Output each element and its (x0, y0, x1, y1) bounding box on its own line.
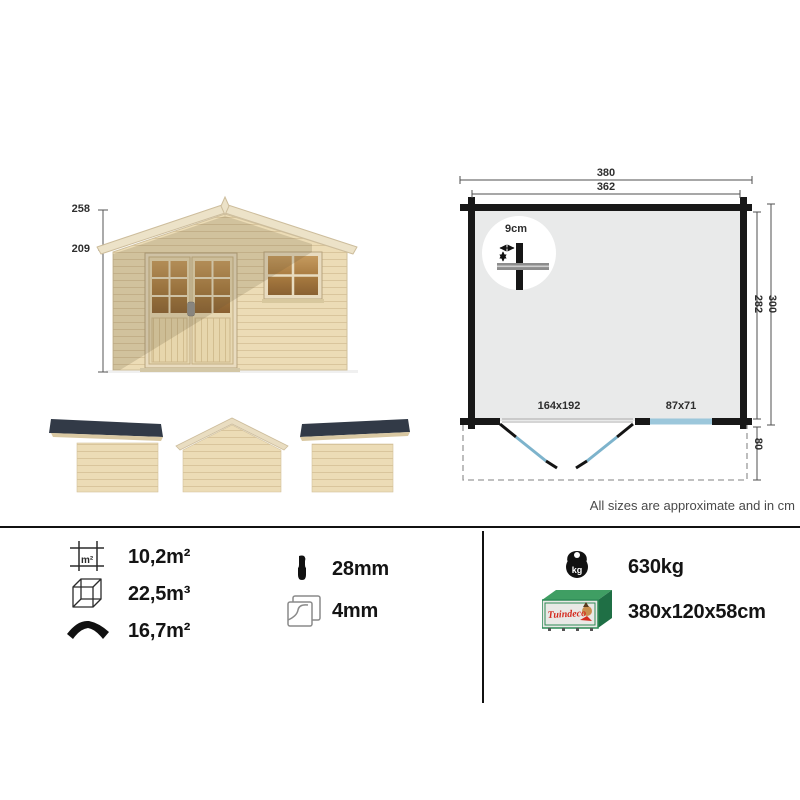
floor-plan-drawing (440, 160, 785, 495)
right-side-view (300, 419, 410, 492)
wall-thickness-value: 28mm (332, 558, 389, 581)
spec-divider-horizontal (0, 526, 800, 528)
plan-canopy-outline (463, 425, 747, 480)
volume-cube-icon (70, 575, 104, 611)
volume-value: 22,5m³ (128, 583, 190, 606)
door-step (140, 368, 240, 372)
glass-thickness-value: 4mm (332, 600, 378, 623)
product-spec-sheet: 258 209 (0, 0, 800, 800)
spec-divider-vertical (482, 531, 484, 703)
back-view (176, 418, 288, 492)
inner-width-label: 362 (472, 181, 740, 193)
package-box-icon: Tuindeco (542, 590, 618, 632)
glass-pane-icon (286, 594, 322, 628)
floor-area-value: 10,2m² (128, 546, 190, 569)
roof-area-icon (66, 618, 110, 640)
window-size-label: 87x71 (646, 400, 716, 412)
wall-detail-label: 9cm (496, 223, 536, 235)
inner-depth-label: 282 (752, 291, 764, 317)
door-size-label: 164x192 (519, 400, 599, 412)
svg-text:Tuindeco: Tuindeco (547, 608, 586, 621)
roof-area-value: 16,7m² (128, 620, 190, 643)
outer-width-label: 380 (460, 167, 752, 179)
outer-depth-label: 300 (766, 291, 778, 317)
canopy-depth-label: 80 (752, 431, 764, 457)
floor-area-icon: m² (70, 541, 104, 571)
package-size-value: 380x120x58cm (628, 601, 766, 624)
height-dimension-line (98, 210, 108, 372)
plan-window (650, 419, 712, 425)
sizes-note: All sizes are approximate and in cm (495, 498, 795, 513)
weight-icon: kg (564, 548, 590, 578)
front-elevation-drawing (40, 190, 380, 385)
peak-height-label: 258 (48, 203, 90, 215)
left-side-view (49, 419, 163, 492)
eaves-height-label: 209 (48, 243, 90, 255)
plan-door-swing (500, 424, 633, 468)
weight-value: 630kg (628, 556, 684, 579)
svg-text:kg: kg (572, 565, 583, 575)
svg-text:m²: m² (81, 555, 94, 566)
side-and-back-views (40, 410, 420, 500)
wall-profile-icon (296, 555, 308, 581)
